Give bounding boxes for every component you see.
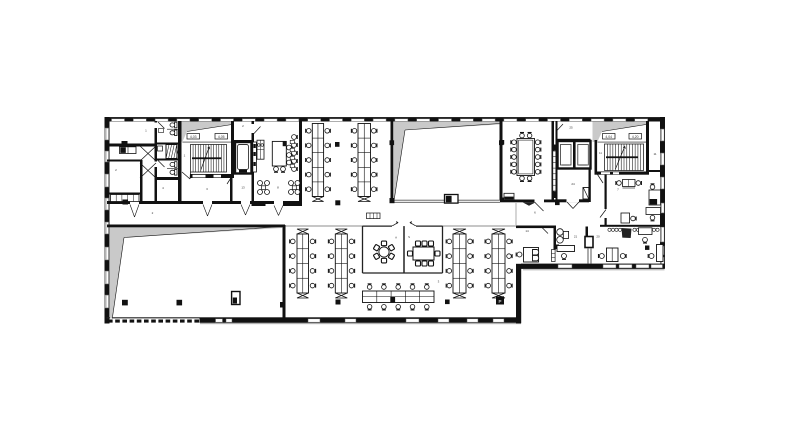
svg-text:24: 24 (571, 182, 575, 186)
svg-text:14: 14 (525, 229, 529, 233)
svg-text:13: 13 (241, 186, 245, 190)
svg-text:S: S (408, 235, 410, 239)
svg-text:21: 21 (574, 235, 578, 239)
svg-text:4,04: 4,04 (605, 135, 612, 139)
svg-text:P: P (498, 299, 501, 304)
svg-text:20: 20 (596, 235, 600, 239)
svg-text:4,03: 4,03 (190, 135, 197, 139)
svg-text:11: 11 (653, 152, 656, 156)
svg-text:A: A (395, 236, 397, 240)
svg-text:4,05: 4,05 (218, 135, 225, 139)
svg-text:25: 25 (569, 126, 573, 130)
svg-text:4,20: 4,20 (632, 135, 639, 139)
